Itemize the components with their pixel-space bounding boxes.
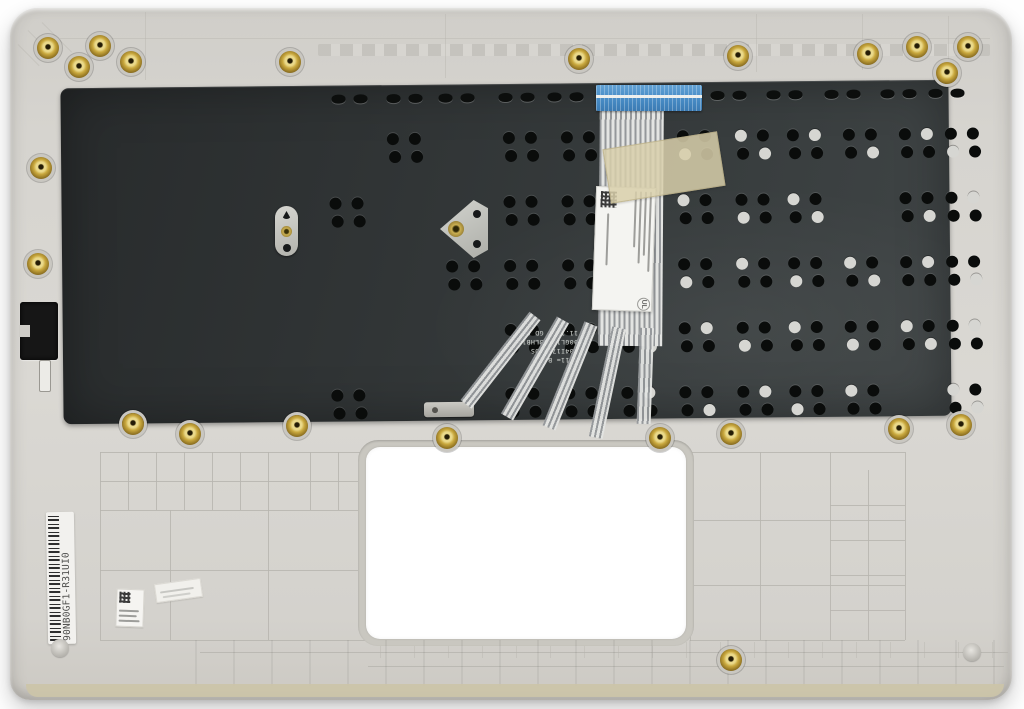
screw-icon — [279, 51, 301, 73]
screw-icon — [89, 35, 111, 57]
screw-icon — [68, 56, 90, 78]
screw-boss — [51, 639, 69, 657]
screw-icon — [568, 48, 590, 70]
screw-icon — [720, 423, 742, 445]
screw-icon — [857, 43, 879, 65]
screw-icon — [649, 427, 671, 449]
screw-icon — [888, 418, 910, 440]
screw-icon — [950, 414, 972, 436]
screw-icon — [906, 36, 928, 58]
screw-icon — [122, 413, 144, 435]
screw-icon — [179, 423, 201, 445]
screw-layer — [0, 0, 1024, 709]
screw-icon — [37, 37, 59, 59]
screw-icon — [120, 51, 142, 73]
screw-icon — [727, 45, 749, 67]
screw-icon — [936, 62, 958, 84]
screw-icon — [27, 253, 49, 275]
screw-boss — [963, 643, 981, 661]
screw-icon — [720, 649, 742, 671]
photo-stage: A 11= B A04I1703 US 00GL17A73LHB11 11.12… — [0, 0, 1024, 709]
screw-icon — [957, 36, 979, 58]
screw-icon — [30, 157, 52, 179]
screw-icon — [286, 415, 308, 437]
screw-icon — [436, 427, 458, 449]
